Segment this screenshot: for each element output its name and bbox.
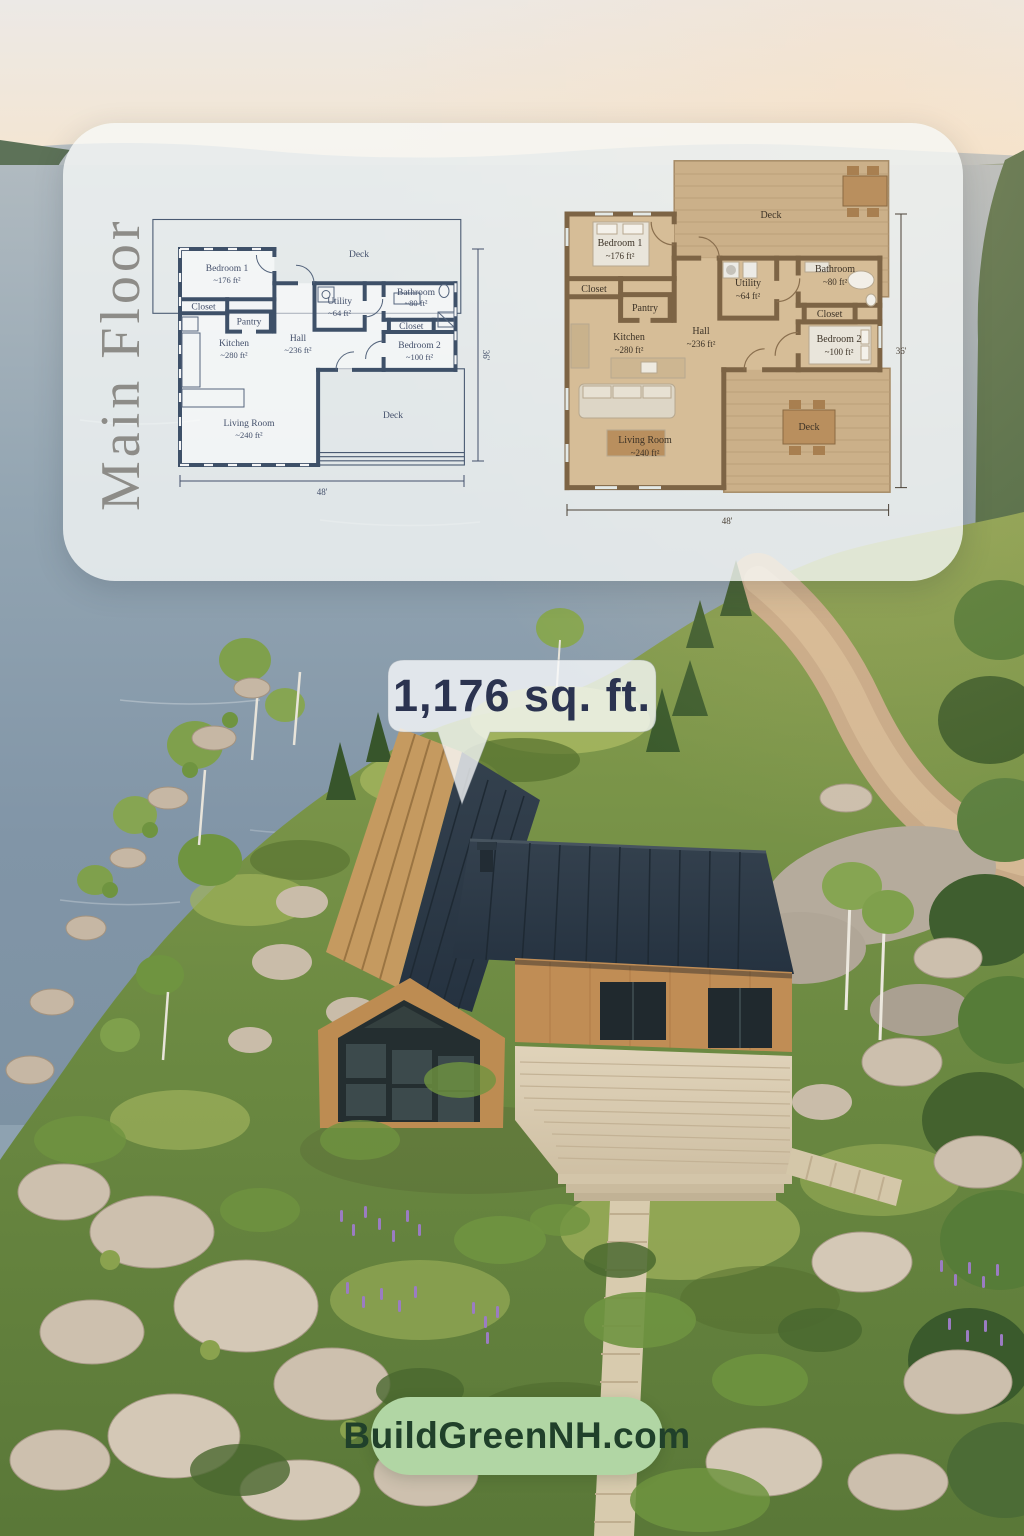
room-label: Pantry <box>632 303 658 314</box>
room-label: Deck <box>349 250 369 260</box>
room-label: Bedroom 2 <box>817 334 862 345</box>
pin-image: Main Floor <box>0 0 1024 1536</box>
area-callout-label: 1,176 sq. ft. <box>393 670 651 721</box>
room-area: ~80 ft² <box>405 298 428 308</box>
area-callout: 1,176 sq. ft. <box>378 654 690 814</box>
room-label: Deck <box>383 411 403 421</box>
room-label: Closet <box>817 309 843 320</box>
room-label: Kitchen <box>219 339 249 349</box>
room-label: Hall <box>290 334 307 344</box>
room-area: ~240 ft² <box>631 448 660 458</box>
room-area: ~80 ft² <box>823 277 848 287</box>
room-label: Utility <box>327 297 352 307</box>
floor-plan-panel: Main Floor <box>63 123 963 581</box>
room-label: Living Room <box>618 435 672 446</box>
room-label: Hall <box>692 326 709 337</box>
room-label: Living Room <box>224 419 276 429</box>
room-area: ~240 ft² <box>235 430 263 440</box>
room-area: ~176 ft² <box>606 251 635 261</box>
room-area: ~100 ft² <box>825 347 854 357</box>
rendered-floor-plan: 48' 36' Deck Bedroom 1 ~176 ft² Closet P… <box>555 158 923 566</box>
room-area: ~64 ft² <box>328 308 351 318</box>
room-label: Kitchen <box>613 332 645 343</box>
room-label: Deck <box>798 422 819 433</box>
dim-height-label: 36' <box>896 346 907 356</box>
room-label: Bathroom <box>815 264 855 275</box>
room-label: Bedroom 2 <box>398 341 441 351</box>
panel-title: Main Floor <box>89 211 153 511</box>
room-label: Pantry <box>237 318 262 328</box>
room-label: Bedroom 1 <box>598 238 643 249</box>
website-badge: BuildGreenNH.com <box>371 1397 663 1475</box>
room-area: ~64 ft² <box>736 291 761 301</box>
room-area: ~236 ft² <box>284 345 312 355</box>
room-label: Utility <box>735 278 761 289</box>
dim-width-label: 48' <box>317 487 328 497</box>
room-area: ~236 ft² <box>687 339 716 349</box>
room-area: ~176 ft² <box>213 275 241 285</box>
dim-width-label: 48' <box>722 516 733 526</box>
room-label: Bedroom 1 <box>206 264 249 274</box>
blueprint-floor-plan: 48' 36' Deck Bedroom 1 ~176 ft² Closet P… <box>148 208 500 518</box>
room-label: Bathroom <box>397 288 436 298</box>
room-area: ~100 ft² <box>406 352 434 362</box>
room-area: ~280 ft² <box>615 345 644 355</box>
room-label: Closet <box>399 322 424 332</box>
dim-height-label: 36' <box>481 350 491 361</box>
room-area: ~280 ft² <box>220 350 248 360</box>
room-label: Closet <box>581 284 607 295</box>
room-label: Deck <box>760 210 781 221</box>
room-label: Closet <box>191 303 216 313</box>
